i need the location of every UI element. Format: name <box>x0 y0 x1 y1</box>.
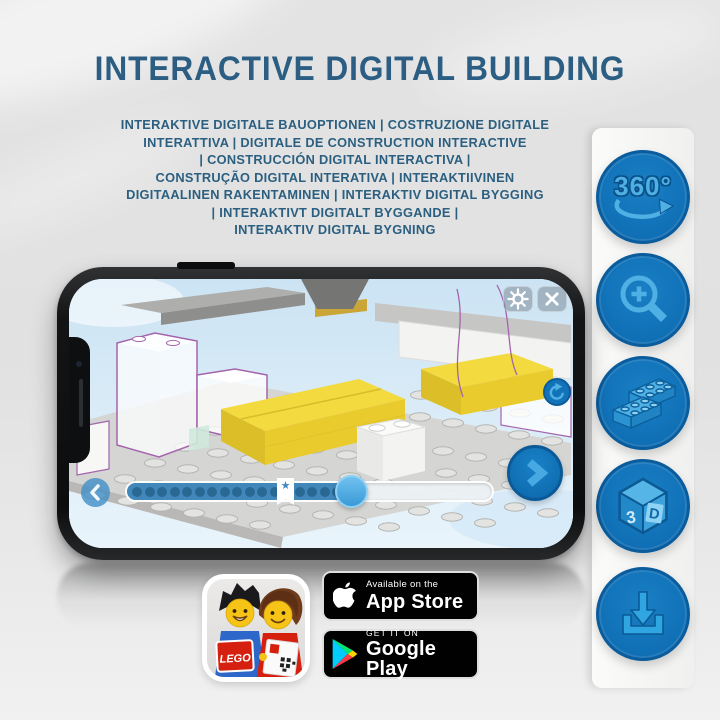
progress-dot <box>307 487 317 497</box>
progress-dot <box>320 487 330 497</box>
page-title: INTERACTIVE DIGITAL BUILDING <box>25 50 695 89</box>
app-store-tagline: Available on the <box>366 580 463 590</box>
speaker-slit <box>79 379 83 427</box>
gear-icon <box>507 288 529 310</box>
progress-dot <box>182 487 192 497</box>
zoom-in-icon <box>612 269 674 331</box>
3d-cube-icon: 3 D <box>610 473 676 539</box>
rotate-view-button[interactable] <box>543 378 571 406</box>
phone-mockup: ★ <box>57 267 585 560</box>
subtitle-line: DIGITAALINEN RAKENTAMINEN | INTERAKTIV D… <box>85 186 585 204</box>
progress-dot <box>132 487 142 497</box>
subtitle-line: CONSTRUÇÃO DIGITAL INTERATIVA | INTERAKT… <box>85 169 585 187</box>
progress-dot <box>145 487 155 497</box>
previous-step-button[interactable] <box>81 478 110 507</box>
rotate-icon <box>547 382 567 402</box>
lego-app-icon-art: LEGO <box>207 579 305 677</box>
back-arrow-icon <box>81 478 110 507</box>
google-play-name: Google Play <box>366 639 477 679</box>
360-arrow-icon <box>611 198 675 220</box>
progress-dot <box>220 487 230 497</box>
front-camera <box>76 361 82 367</box>
app-store-name: App Store <box>366 592 463 612</box>
phone-notch <box>69 337 90 463</box>
download-icon <box>613 584 673 644</box>
apple-logo-icon <box>324 582 366 610</box>
subtitle-line: | CONSTRUCCIÓN DIGITAL INTERACTIVA | <box>85 151 585 169</box>
progress-handle[interactable] <box>335 475 368 508</box>
google-play-badge[interactable]: GET IT ON Google Play <box>322 629 479 679</box>
star-icon: ★ <box>281 478 291 505</box>
lego-logo-text: LEGO <box>219 652 251 666</box>
phone-screen: ★ <box>69 279 573 548</box>
progress-dots <box>132 487 357 497</box>
google-play-tagline: GET IT ON <box>366 629 477 638</box>
app-ui-overlay: ★ <box>69 279 573 548</box>
feature-360-rotation: 360° <box>596 150 690 244</box>
subtitle: INTERAKTIVE DIGITALE BAUOPTIONEN | COSTR… <box>85 116 585 239</box>
close-button[interactable] <box>537 286 567 312</box>
progress-dot <box>232 487 242 497</box>
progress-dot <box>295 487 305 497</box>
phone-reflection <box>57 563 585 629</box>
progress-dot <box>207 487 217 497</box>
marketing-page: INTERACTIVE DIGITAL BUILDING INTERAKTIVE… <box>0 0 720 720</box>
feature-zoom <box>596 253 690 347</box>
build-progress-bar[interactable]: ★ <box>127 483 492 500</box>
subtitle-line: INTERAKTIV DIGITAL BYGNING <box>85 221 585 239</box>
progress-fill <box>127 483 357 500</box>
progress-dot <box>170 487 180 497</box>
progress-dot <box>157 487 167 497</box>
next-step-button[interactable] <box>507 445 563 501</box>
next-arrow-icon <box>510 445 560 501</box>
app-store-badge[interactable]: Available on the App Store <box>322 571 479 621</box>
lego-app-icon[interactable]: LEGO <box>202 574 310 682</box>
close-icon <box>543 290 561 308</box>
subtitle-line: INTERAKTIVE DIGITALE BAUOPTIONEN | COSTR… <box>85 116 585 134</box>
volume-button <box>177 262 235 269</box>
subtitle-line: | INTERAKTIVT DIGITALT BYGGANDE | <box>85 204 585 222</box>
feature-download <box>596 567 690 661</box>
360-label: 360° <box>614 174 672 198</box>
feature-bricks <box>596 356 690 450</box>
cube-d-label: D <box>648 506 661 523</box>
bookmark-marker[interactable]: ★ <box>277 478 294 505</box>
google-play-logo-icon <box>324 639 366 669</box>
progress-dot <box>257 487 267 497</box>
brick-icon <box>609 372 677 434</box>
progress-dot <box>245 487 255 497</box>
feature-3d-view: 3 D <box>596 459 690 553</box>
progress-dot <box>195 487 205 497</box>
settings-button[interactable] <box>503 286 533 312</box>
subtitle-line: INTERATTIVA | DIGITALE DE CONSTRUCTION I… <box>85 134 585 152</box>
